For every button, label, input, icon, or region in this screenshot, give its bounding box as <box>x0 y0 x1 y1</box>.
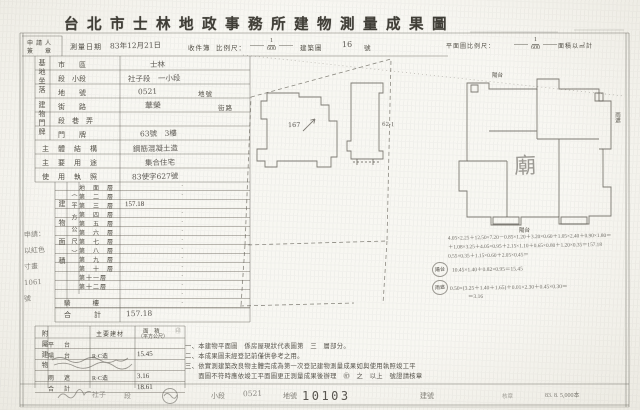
calc-line: 0.55×0.35＋1.15×0.60＋2.05×0.45＝ <box>448 249 638 261</box>
sheet-title: 台北市士林地政事務所建物測量成果圖 <box>64 13 455 34</box>
annex-row: 陽 台 R·C造 15.45 <box>35 349 185 360</box>
site-plan-building-b <box>347 83 383 165</box>
annex-area-value: 18.61 <box>137 383 153 391</box>
floor-row: 第 四 層 · <box>55 209 250 218</box>
floor-area-value: · <box>181 299 183 307</box>
area-total-value: 157.18 <box>126 309 152 319</box>
scanned-survey-sheet: 台北市士林地政事務所建物測量成果圖 申請人 簽 章 測量日期 83年12月21日… <box>0 0 640 410</box>
floor-row: 第 三 層 157.18 <box>55 200 250 209</box>
plan-scale-fraction: 1 600 <box>514 37 557 51</box>
door-lane-label: 段 巷 弄 <box>58 116 93 126</box>
fraction-denominator: 600 <box>267 46 276 53</box>
floor-area-value: · <box>181 263 183 271</box>
floor-row: 第 五 層 · <box>55 218 250 227</box>
fraction-dash <box>250 45 264 46</box>
survey-date-value: 83年12月21日 <box>110 39 161 51</box>
floor-row: 第十二層 · <box>55 281 250 290</box>
floor-row: 第 六 層 · <box>55 227 250 236</box>
footer-lot-handwriting: 0521 <box>243 389 262 398</box>
fraction-dash <box>543 44 557 45</box>
main-use-value: 集合住宅 <box>145 157 175 169</box>
plan-scale-note: 面積以㎡計 <box>558 41 593 50</box>
site-lot-value: 0521 <box>138 87 157 96</box>
floor-area-value: · <box>181 236 183 244</box>
floor-area-table: 地 面 層 · 第 二 層 · 第 三 層 157.18 第 四 層 · 第 五… <box>55 182 250 308</box>
annex-material: R·C造 <box>92 373 108 382</box>
annex-material: R·C造 <box>92 351 108 360</box>
margin-note-line: 號 <box>23 289 58 307</box>
floor-plan-canopy-right-label: 雨遮 <box>613 112 621 123</box>
sheet-number-unit: 號 <box>364 42 371 52</box>
canopy-calc-line-2: ＝3.16 <box>468 292 483 300</box>
fraction-numerator: 1 <box>532 37 539 45</box>
site-district-label: 市 區 <box>58 60 86 70</box>
structure-label: 主體結構 <box>42 144 106 154</box>
arcade-row-label: 騎 樓 <box>64 297 102 307</box>
group-label-building-address: 建物門牌 <box>37 101 47 139</box>
floor-row: 第十一層 · <box>55 272 250 281</box>
footnotes: 一、本建物平面圖 係房屋現狀代表圖第 三 層部分。二、本成果圖未經登記前僅供參考… <box>185 342 423 382</box>
site-plan-lot-number: 62-1 <box>382 122 395 128</box>
annex-row <box>35 360 185 371</box>
balcony-stamp: 陽台 <box>431 261 448 278</box>
seal-glyph: ㊞ <box>175 326 181 335</box>
sheet-number-value: 16 <box>342 40 352 49</box>
floor-row: 第 七 層 · <box>55 236 250 245</box>
footer-serial-number: 10103 <box>302 389 351 403</box>
floor-area-value: · <box>181 272 183 280</box>
group-label-site-location: 基地坐落 <box>37 59 47 97</box>
scale-fraction: 1 600 <box>250 38 293 52</box>
fraction-numerator: 1 <box>268 38 275 46</box>
fraction-value: 1 600 <box>531 37 540 51</box>
main-use-label: 主要用途 <box>42 158 106 168</box>
annex-material-header: 主要建材 <box>96 329 124 338</box>
area-total-label: 合 計 <box>64 310 104 320</box>
footer-section-label: 段 <box>124 391 131 401</box>
floor-area-value: · <box>181 227 183 235</box>
annex-table: 平 台 陽 台 R·C造 15.45 雨 遮 R·C造 3.16 <box>35 338 185 393</box>
floor-area-value: 157.18 <box>125 200 144 208</box>
fraction-dash <box>279 45 293 46</box>
door-street-label: 街 路 <box>58 102 86 112</box>
applicant-seal-label: 簽 章 <box>27 46 54 55</box>
site-district-value: 士林 <box>150 59 165 70</box>
door-street-value: 華榮 <box>145 100 161 111</box>
floor-plan-center-character: 廟 <box>513 148 536 181</box>
floor-area-value: · <box>181 281 183 289</box>
site-section-label: 段 小段 <box>58 74 86 84</box>
margin-handwriting: 申請：以紅色寸畫1061號 <box>24 226 58 306</box>
canopy-stamp: 雨遮 <box>431 279 448 296</box>
footer-lot-label: 地號 <box>283 391 297 401</box>
footnote-line: 二、本成果圖未經登記前僅供參考之用。 <box>185 352 423 362</box>
floor-plan-balcony-top-label: 陽台 <box>492 71 503 79</box>
sheet-kind-label: 建築圖 <box>300 42 323 52</box>
use-license-label: 使用執照 <box>42 172 106 182</box>
annex-row: 合 計 18.61 <box>35 382 185 393</box>
canopy-calc-line: 0.50×(3.25＋1.40＋1.65)＋0.01×2.30＋0.45×0.3… <box>450 282 568 292</box>
area-calculation-lines: 4.05×2.25＋12.50×7.20－0.85×1.20＋3.20×0.60… <box>448 231 638 261</box>
floor-row: 第 二 層 · <box>55 191 250 200</box>
floor-row: 地 面 層 · <box>55 182 250 191</box>
annex-area-value: 15.45 <box>137 350 153 358</box>
annex-use: 平 台 <box>48 340 72 349</box>
annex-area-value: 3.16 <box>137 372 149 380</box>
floor-area-value: · <box>181 182 183 190</box>
floor-area-value: · <box>181 191 183 199</box>
site-section-value: 社子段 一小段 <box>128 72 181 84</box>
floor-area-value: · <box>181 209 183 217</box>
fraction-value: 1 600 <box>267 38 276 52</box>
use-license-value: 83使字627號 <box>132 171 179 183</box>
annex-use: 陽 台 <box>48 351 72 360</box>
structure-value: 鋼筋混凝土造 <box>133 143 178 155</box>
footnote-line: 一、本建物平面圖 係房屋現狀代表圖第 三 層部分。 <box>185 342 423 352</box>
annex-row: 平 台 <box>35 338 185 349</box>
footer-building-number-label: 建號 <box>420 391 434 401</box>
scale-label: 比例尺： <box>216 42 246 52</box>
floor-area-value: · <box>181 245 183 253</box>
door-street-suffix: 街路 <box>218 102 233 112</box>
footnote-line: 三、依實測建築改良物主體完成為第一次登記建物測量成果如與使用執照竣工平 <box>185 362 423 372</box>
receipt-book-label: 收件簿 <box>188 42 211 52</box>
floor-area-value: · <box>181 290 183 298</box>
footer-subsection-label: 小段 <box>211 391 225 401</box>
footer-section-handwriting: 社子 <box>92 390 106 400</box>
site-plan-building-label: 167 <box>288 121 301 129</box>
plan-scale-label: 平面圖比例尺： <box>446 41 495 50</box>
balcony-calc-line: 10.45×1.40＋0.82×0.95＝15.45 <box>452 264 523 273</box>
annex-use: 雨 遮 <box>48 373 72 382</box>
door-number-value: 63號 3樓 <box>140 128 177 140</box>
fraction-denominator: 600 <box>531 45 540 52</box>
floor-area-value: · <box>181 254 183 262</box>
floor-row: 第 十 層 · <box>55 263 250 272</box>
site-lot-label: 地 號 <box>58 88 86 98</box>
survey-date-label: 測量日期 <box>70 42 102 52</box>
footer-mid-token: 核章 <box>502 392 513 400</box>
site-plan-building-a <box>257 93 337 167</box>
footnote-line: 面圖不符時應依竣工平面圖更正測量成果後辦理 ㊞ 之 以上 號證請核章 <box>185 372 423 382</box>
dotted-leader-line <box>243 55 624 96</box>
floor-row: 第 八 層 · <box>55 245 250 254</box>
annex-use: 合 計 <box>48 384 72 393</box>
floor-area-value: · <box>181 218 183 226</box>
door-number-label: 門 牌 <box>58 130 86 140</box>
annex-row: 雨 遮 R·C造 3.16 <box>35 371 185 382</box>
site-lot-suffix: 地號 <box>198 88 213 98</box>
floor-row: 第 九 層 · <box>55 254 250 263</box>
fraction-dash <box>514 44 528 45</box>
footer-print-note: 83. 8. 5,000本 <box>545 390 580 399</box>
faint-top-rules <box>470 30 624 32</box>
site-plan-boundary <box>240 59 391 306</box>
